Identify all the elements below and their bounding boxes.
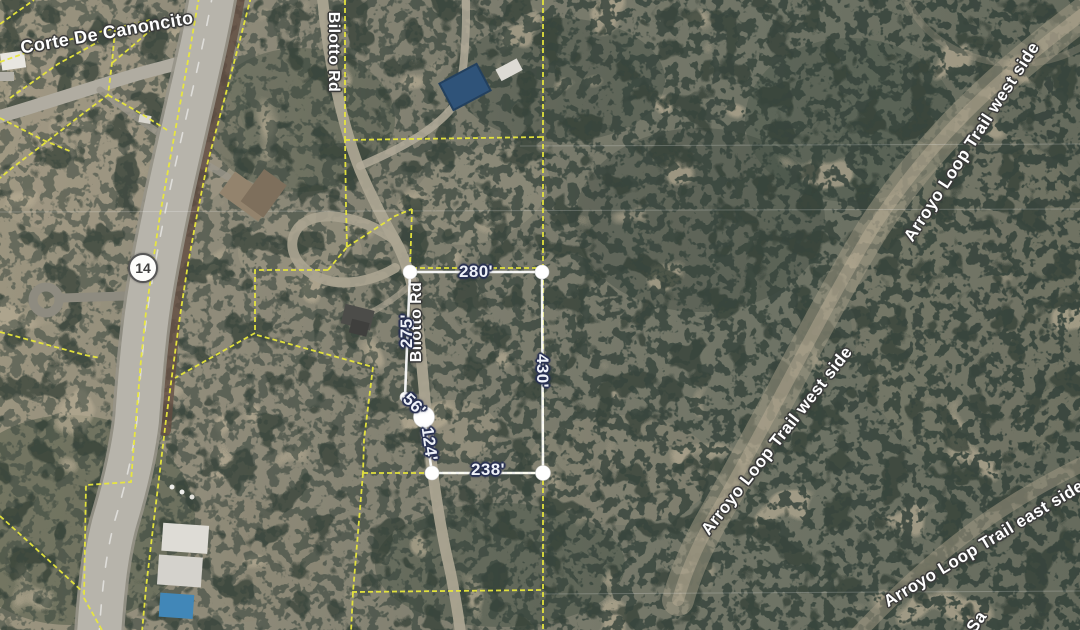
measure-label-bottom: 238' (471, 460, 505, 480)
measurement-overlay (0, 0, 1080, 630)
measure-label-top: 280' (459, 262, 493, 282)
measure-vertex-bottomleft[interactable] (425, 466, 439, 480)
map-canvas[interactable]: Corte De Canoncito Bilotto Rd Bilotto Rd… (0, 0, 1080, 630)
measure-vertex-topright[interactable] (535, 265, 549, 279)
measure-vertex-bottomright[interactable] (536, 466, 551, 481)
measure-label-right: 430' (532, 354, 552, 388)
measure-label-left: 275' (397, 314, 417, 348)
measure-vertex-topleft[interactable] (403, 265, 417, 279)
